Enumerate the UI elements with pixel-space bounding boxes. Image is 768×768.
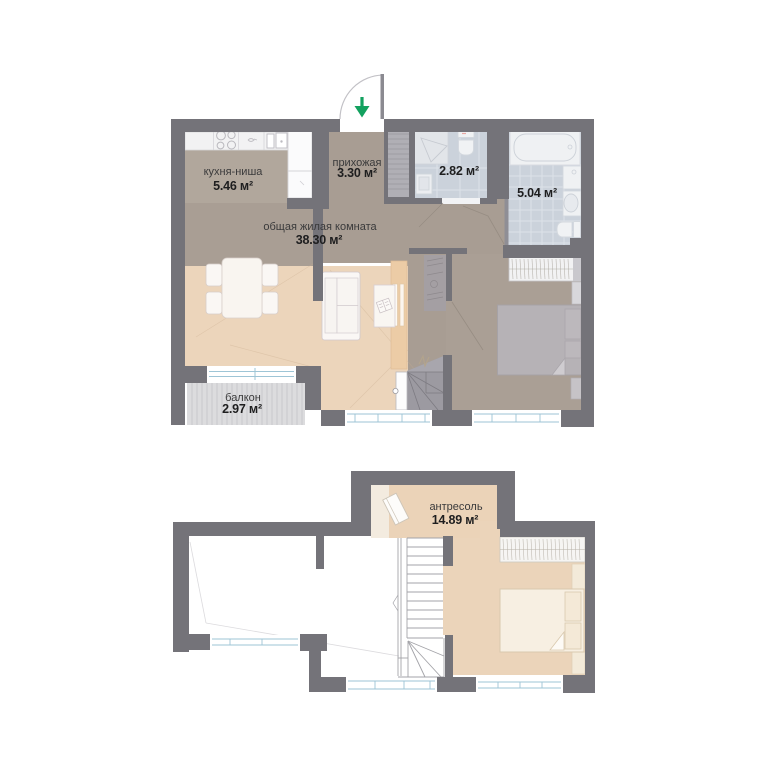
svg-text:5.46 м²: 5.46 м² [213,179,253,193]
svg-text:3.30 м²: 3.30 м² [337,166,377,180]
svg-text:общая жилая комната: общая жилая комната [263,221,377,233]
svg-text:кухня-ниша: кухня-ниша [204,166,264,178]
svg-text:5.04 м²: 5.04 м² [517,186,557,200]
svg-text:2.82 м²: 2.82 м² [439,164,479,178]
svg-text:2.97 м²: 2.97 м² [222,402,262,416]
svg-text:14.89 м²: 14.89 м² [432,513,479,527]
svg-text:антресоль: антресоль [429,501,482,513]
svg-text:38.30 м²: 38.30 м² [296,233,343,247]
